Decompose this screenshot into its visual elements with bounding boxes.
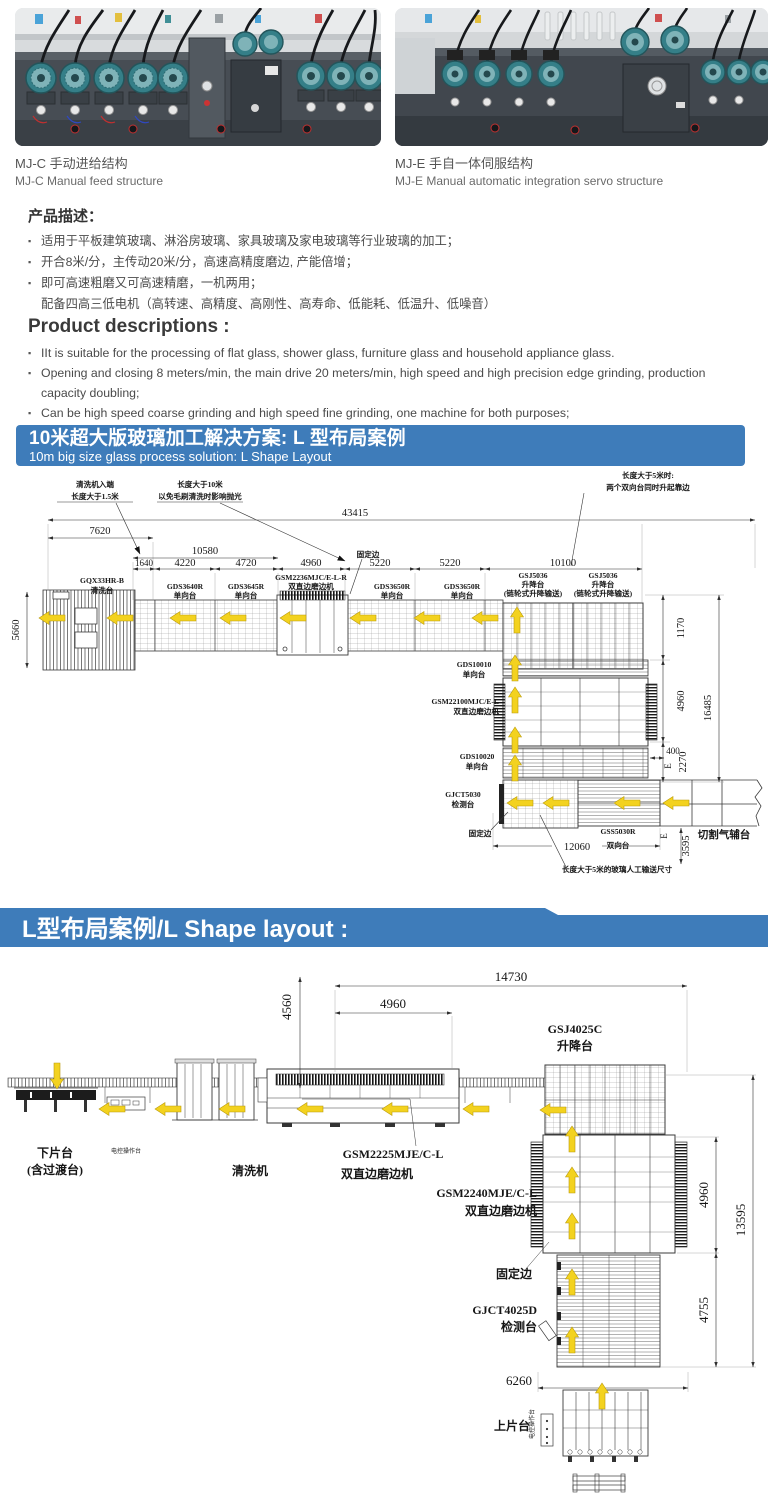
photo-mjc-caption-zh: MJ-C 手动进给结构 [15, 153, 381, 172]
dim-total: 43415 [342, 508, 368, 519]
photo-mje-figure: MJ-E 手自一体伺服结构 MJ-E Manual automatic inte… [395, 8, 768, 188]
dim-1170: 1170 [676, 618, 687, 639]
machine-gsj5036-b: GSJ5036 [588, 571, 617, 580]
desc-zh-bullet: 即可高速粗磨又可高速精磨，一机两用； [28, 273, 750, 294]
desc-zh-continuation: 配备四高三低电机（高转速、高精度、高刚性、高寿命、低能耗、低温升、低噪音） [28, 294, 750, 315]
machine-gsm2236: GSM2236MJC/E-L-R [275, 573, 347, 582]
machine-gds3640r: GDS3640R [167, 582, 204, 591]
dim-12060: 12060 [564, 842, 590, 853]
machine-gjct5030: GJCT5030 [445, 790, 481, 799]
photo-mje-caption-en: MJ-E Manual automatic integration servo … [395, 174, 768, 188]
label-cutting-air-table: 切割气辅台 [698, 828, 751, 841]
note-manual-convey: 长度大于5米的玻璃人工输送尺寸 [562, 864, 673, 874]
dim-1640: 1640 [135, 558, 154, 568]
dim-4720: 4720 [236, 558, 257, 569]
machine-gsj5036-b-note: (链轮式升降输送) [574, 588, 633, 598]
note-over5m-line2: 两个双向台同时升起靠边 [606, 482, 690, 492]
machine-gsm2225-type: 双直边磨边机 [341, 1166, 413, 1181]
machine-gsm2240-type: 双直边磨边机 [465, 1203, 537, 1218]
dim-4960-right: 4960 [676, 691, 687, 712]
dim-4560: 4560 [279, 994, 294, 1020]
dim-3595: 3595 [681, 836, 692, 857]
desc-zh-heading: 产品描述： [28, 205, 750, 226]
machine-gds3650r-b-type: 单向台 [451, 590, 474, 600]
machine-gds10010-type: 单向台 [463, 669, 486, 679]
machine-gds10010: GDS10010 [457, 660, 492, 669]
photo-mje [395, 8, 768, 146]
d2-structure [8, 1059, 687, 1492]
dim-5220-a: 5220 [370, 558, 391, 569]
desc-en-bullet: Can be high speed coarse grinding and hi… [28, 403, 750, 423]
photo-mjc [15, 8, 381, 146]
machine-gds3645r: GDS3645R [228, 582, 265, 591]
photo-mjc-caption-en: MJ-C Manual feed structure [15, 174, 381, 188]
section-mark-e1: E [659, 833, 669, 839]
machine-gds3650r-a-type: 单向台 [381, 590, 404, 600]
machine-gsj5036-a: GSJ5036 [518, 571, 547, 580]
machine-gds10020: GDS10020 [460, 752, 495, 761]
desc-en-bullet: Opening and closing 8 meters/min, the ma… [28, 363, 750, 403]
machine-gsj5036-b-type: 升降台 [592, 579, 615, 589]
machine-gsm2240: GSM2240MJE/C-L [436, 1186, 537, 1200]
banner-l-shape-title: L型布局案例/L Shape layout : [22, 915, 348, 943]
banner-10m-title-en: 10m big size glass process solution: L S… [29, 450, 745, 464]
dim-4220: 4220 [175, 558, 196, 569]
banner-10m-title-zh: 10米超大版玻璃加工解决方案: L 型布局案例 [29, 425, 745, 450]
dim-400: 400 [666, 746, 680, 756]
machine-gsm22100-type: 双直边磨边机 [453, 706, 499, 716]
label-washing-machine: 清洗机 [232, 1163, 268, 1178]
machine-gsm2225: GSM2225MJE/C-L [343, 1147, 444, 1161]
diagram-l-shape-layout: 14730 4960 4560 4960 4755 13595 6260 GSJ… [0, 952, 768, 1507]
dim-4755: 4755 [696, 1297, 711, 1323]
machine-gsj5036-a-type: 升降台 [522, 579, 545, 589]
machine-gss5030r-type: 双向台 [607, 840, 630, 850]
photo-mjc-figure: MJ-C 手动进给结构 MJ-C Manual feed structure [15, 8, 381, 188]
product-description-zh: 产品描述： 适用于平板建筑玻璃、淋浴房玻璃、家具玻璃及家电玻璃等行业玻璃的加工；… [28, 205, 750, 315]
dim-14730: 14730 [495, 969, 528, 984]
dim-16485: 16485 [703, 695, 714, 721]
control-cabinet [623, 64, 689, 132]
desc-en-heading: Product descriptions : [28, 316, 750, 338]
machine-gsj4025c-type: 升降台 [557, 1038, 593, 1053]
dim-6260: 6260 [506, 1373, 532, 1388]
dim-13595: 13595 [733, 1204, 748, 1237]
label-fixed-edge-top: 固定边 [357, 549, 380, 559]
desc-zh-bullet: 开合8米/分，主传动20米/分，高速高精度磨边, 产能倍增； [28, 252, 750, 273]
machine-gds3645r-type: 单向台 [235, 590, 258, 600]
machine-gjct4025d-type: 检测台 [501, 1319, 537, 1334]
dim-4960-right: 4960 [696, 1182, 711, 1208]
machine-gsj4025c: GSJ4025C [548, 1022, 603, 1036]
note-washer-inlet-line1: 清洗机入端 [76, 479, 114, 489]
machine-gjct5030-type: 检测台 [452, 799, 475, 809]
dim-10580: 10580 [192, 546, 218, 557]
machine-gds3650r-a: GDS3650R [374, 582, 411, 591]
machine-gjct4025d: GJCT4025D [472, 1303, 537, 1317]
banner-l-shape: L型布局案例/L Shape layout : [0, 904, 768, 948]
machine-gds3640r-type: 单向台 [174, 590, 197, 600]
machine-gss5030r: GSS5030R [600, 827, 636, 836]
dim-4960-top: 4960 [380, 996, 406, 1011]
label-fixed-edge-bottom: 固定边 [469, 828, 492, 838]
machine-gds10020-type: 单向台 [466, 761, 489, 771]
label-fixed-edge: 固定边 [496, 1266, 533, 1281]
motor-row [189, 30, 283, 138]
d1-structure [43, 590, 762, 828]
label-load-table: 上片台 [494, 1418, 530, 1433]
machine-gsm2236-type: 双直边磨边机 [288, 581, 334, 591]
section-mark-e2: E [663, 763, 673, 769]
dim-10100: 10100 [550, 558, 576, 569]
machine-gds3650r-b: GDS3650R [444, 582, 481, 591]
desc-en-bullet: IIt is suitable for the processing of fl… [28, 343, 750, 363]
photo-mje-caption-zh: MJ-E 手自一体伺服结构 [395, 153, 768, 172]
note-over5m-line1: 长度大于5米时: [622, 470, 674, 480]
machine-gqx33hr-b: GQX33HR-B [80, 576, 124, 585]
label-control-console: 电控操作台 [111, 1147, 141, 1155]
dim-7620: 7620 [90, 526, 111, 537]
label-unload-table-note: (含过渡台) [27, 1162, 83, 1177]
photo-row: MJ-C 手动进给结构 MJ-C Manual feed structure [15, 8, 768, 188]
desc-zh-bullet: 适用于平板建筑玻璃、淋浴房玻璃、家具玻璃及家电玻璃等行业玻璃的加工； [28, 231, 750, 252]
dim-4960: 4960 [301, 558, 322, 569]
machine-gqx33hr-b-type: 清洗台 [91, 585, 114, 595]
dim-5660: 5660 [11, 620, 22, 641]
note-over10m-line2: 以免毛刷清洗时影响抛光 [158, 491, 242, 501]
label-control-console-2: 电控操作台 [528, 1409, 536, 1439]
machine-gsj5036-a-note: (链轮式升降输送) [504, 588, 563, 598]
banner-10m-solution: 10米超大版玻璃加工解决方案: L 型布局案例 10m big size gla… [16, 425, 745, 466]
dim-5220-b: 5220 [440, 558, 461, 569]
machine-gsm22100: GSM22100MJC/E-L [432, 697, 500, 706]
note-over10m-line1: 长度大于10米 [177, 479, 223, 489]
diagram-10m-l-shape: 清洗机入端 长度大于1.5米 长度大于10米 以免毛刷清洗时影响抛光 长度大于5… [0, 468, 768, 904]
label-unload-table: 下片台 [37, 1145, 73, 1160]
note-washer-inlet-line2: 长度大于1.5米 [71, 491, 119, 501]
